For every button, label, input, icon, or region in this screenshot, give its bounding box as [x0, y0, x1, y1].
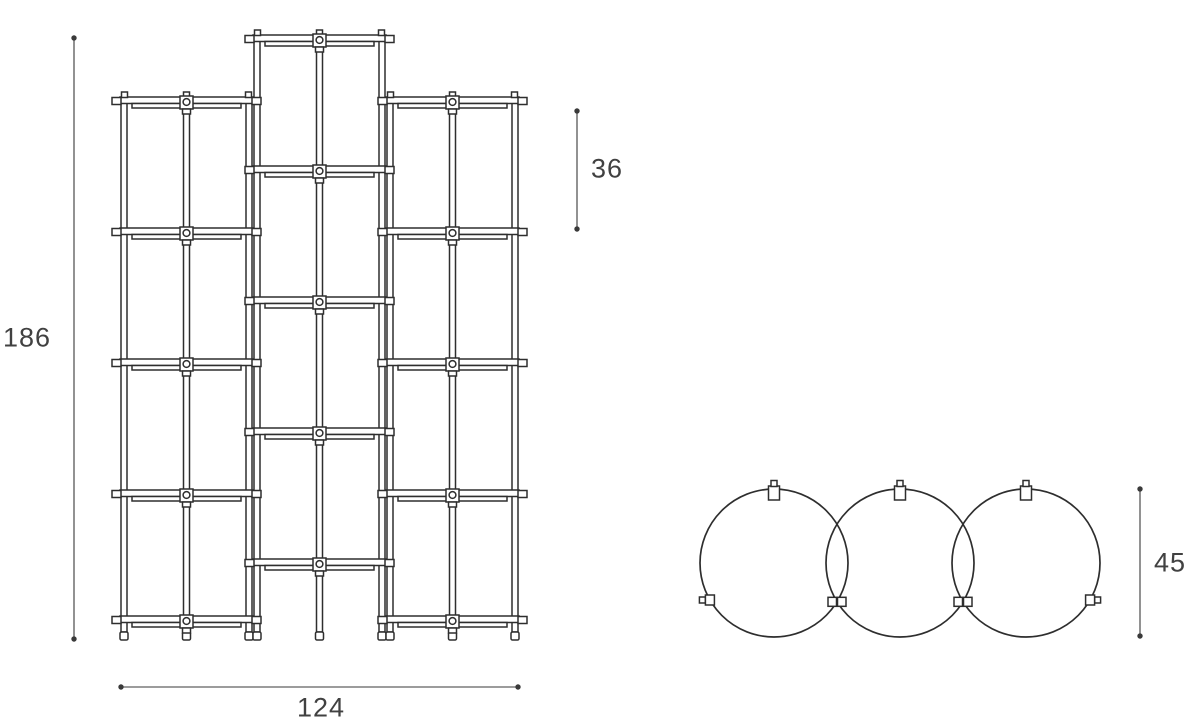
technical-drawing-svg: [0, 0, 1195, 725]
dimension-label-overall-width: 124: [297, 695, 345, 722]
drawing-canvas: 186 36 124 45: [0, 0, 1195, 725]
dimension-label-shelf-diameter: 45: [1154, 550, 1186, 577]
plan-view-drawing: [699, 481, 1142, 639]
dimension-label-compartment-height: 36: [591, 156, 623, 183]
dimension-label-overall-height: 186: [3, 325, 51, 352]
front-elevation-drawing: [71, 30, 579, 690]
